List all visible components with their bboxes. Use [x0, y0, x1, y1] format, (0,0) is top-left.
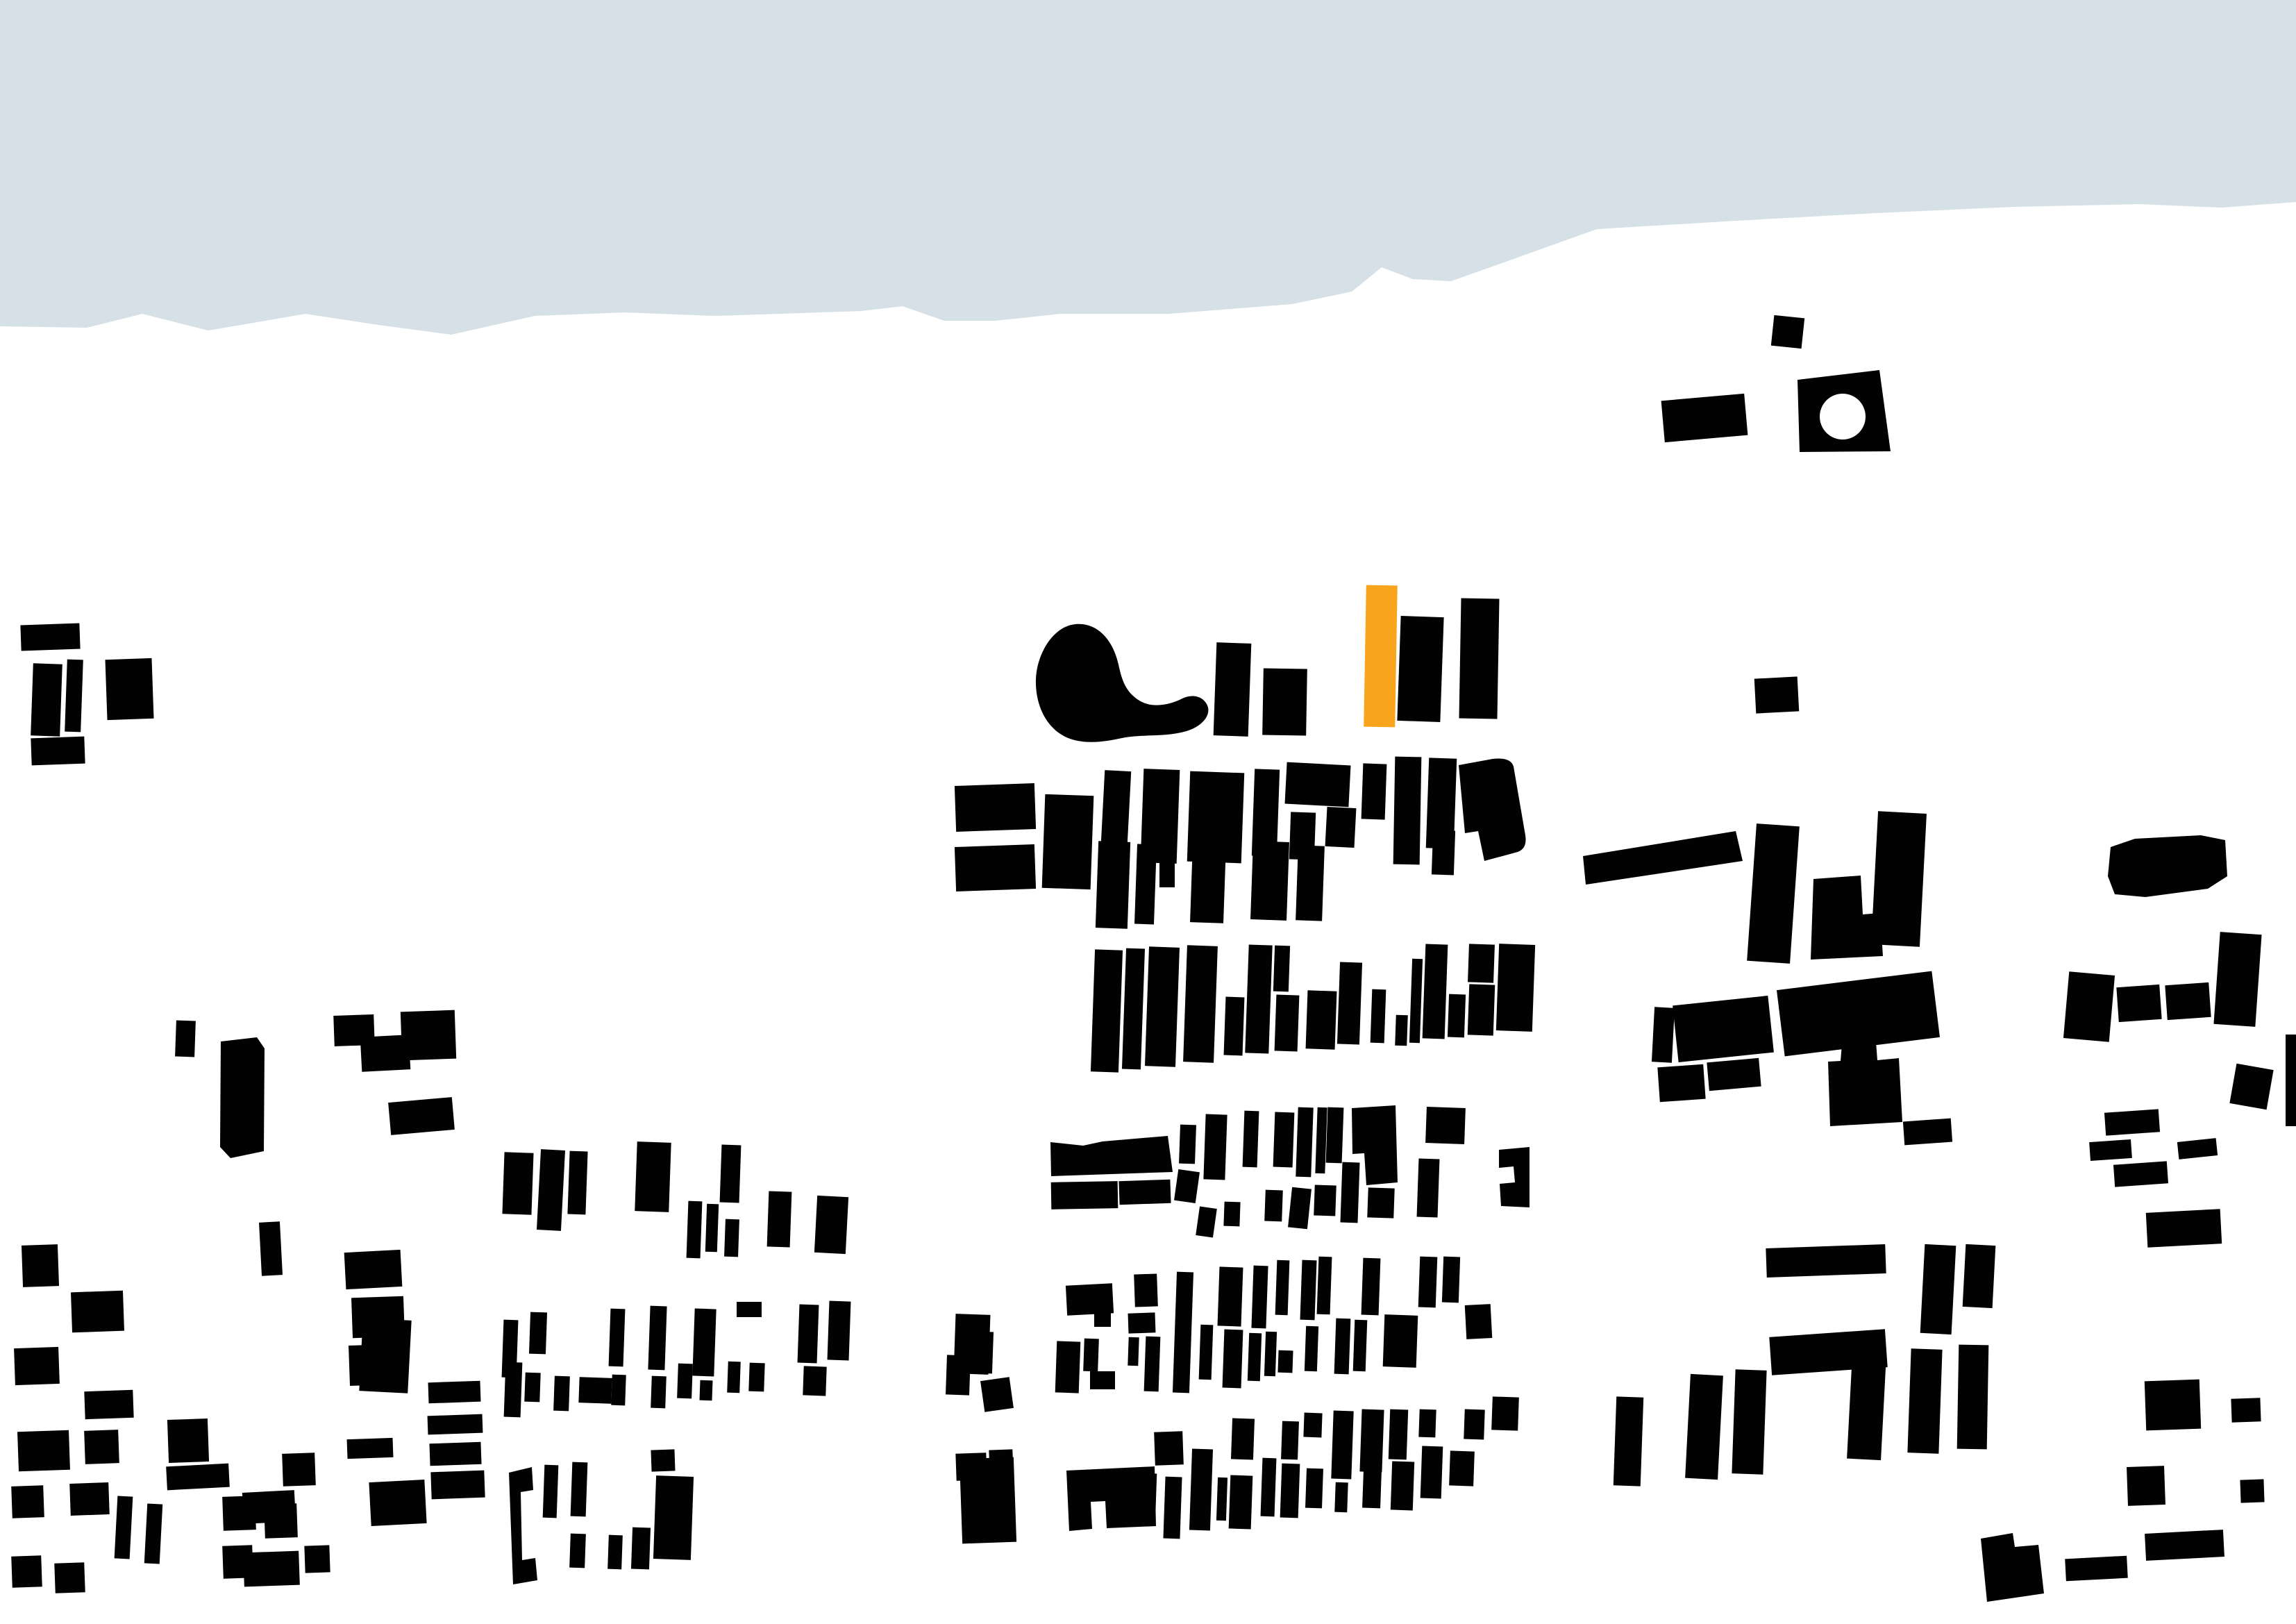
- building-footprint: [1305, 1326, 1318, 1372]
- building-footprint: [1066, 1466, 1156, 1531]
- building-footprint: [1275, 994, 1300, 1051]
- building-footprint: [1173, 1272, 1193, 1393]
- building-group-central-row5: [955, 1396, 1518, 1543]
- building-group-orange-cluster-black: [1036, 598, 1500, 742]
- building-footprint: [1134, 844, 1157, 925]
- building-footprint: [344, 1250, 403, 1289]
- building-footprint: [1367, 1187, 1394, 1218]
- building-footprint: [1340, 1162, 1359, 1223]
- building-footprint: [631, 1527, 651, 1570]
- building-group-central-row2: [1091, 944, 1535, 1073]
- building-footprint: [1652, 1007, 1675, 1062]
- building-footprint: [1314, 1184, 1336, 1216]
- building-footprint: [1134, 1273, 1158, 1307]
- building-footprint: [1145, 946, 1180, 1066]
- building-footprint: [1199, 1325, 1214, 1380]
- building-footprint: [430, 1471, 485, 1500]
- building-footprint: [1362, 1471, 1382, 1509]
- building-footprint: [651, 1449, 675, 1471]
- building-group-central-row1: [955, 757, 1526, 929]
- building-footprint: [222, 1496, 256, 1531]
- building-footprint: [1963, 1244, 1996, 1308]
- water-area: [0, 0, 2296, 335]
- building-footprint: [1273, 1112, 1295, 1168]
- building-footprint: [607, 1535, 623, 1570]
- building-footprint: [611, 1375, 626, 1406]
- building-footprint: [1305, 1468, 1323, 1509]
- building-footprint: [1144, 1337, 1161, 1392]
- building-footprint: [1296, 1107, 1313, 1178]
- building-footprint: [1264, 1190, 1283, 1222]
- building-footprint: [1395, 1015, 1408, 1046]
- courtyard-hole: [1820, 394, 1866, 440]
- building-footprint: [11, 1555, 42, 1587]
- building-footprint: [1361, 763, 1387, 819]
- building-footprint: [282, 1453, 316, 1487]
- building-footprint: [401, 1010, 456, 1061]
- building-footprint: [1122, 948, 1145, 1070]
- building-footprint: [369, 1480, 426, 1526]
- building-footprint: [1262, 668, 1307, 735]
- building-footprint: [1409, 959, 1423, 1043]
- building-footprint: [1303, 1413, 1322, 1438]
- building-footprint: [828, 1300, 851, 1360]
- building-footprint: [767, 1191, 792, 1247]
- highlighted-building: [1364, 585, 1398, 728]
- building-footprint: [144, 1503, 162, 1564]
- building-footprint: [1042, 794, 1094, 889]
- building-footprint: [980, 1377, 1014, 1412]
- building-footprint: [1359, 1409, 1384, 1472]
- building-footprint: [2231, 1398, 2261, 1422]
- building-footprint: [651, 1376, 667, 1409]
- building-footprint: [428, 1414, 483, 1435]
- building-footprint: [1051, 1181, 1118, 1209]
- building-footprint: [84, 1430, 119, 1464]
- building-footprint: [653, 1475, 694, 1560]
- building-footprint: [609, 1309, 626, 1367]
- building-footprint: [955, 844, 1036, 891]
- building-footprint: [543, 1465, 559, 1518]
- building-footprint: [65, 660, 83, 733]
- building-footprint: [11, 1485, 44, 1518]
- building-footprint: [14, 1347, 60, 1385]
- building-footprint: [699, 1380, 712, 1401]
- building-footprint: [175, 1021, 196, 1057]
- building-footprint: [1464, 1409, 1484, 1440]
- building-footprint: [1685, 1374, 1723, 1480]
- building-footprint: [569, 1534, 586, 1568]
- building-footprint: [69, 1482, 110, 1516]
- building-footprint: [1190, 844, 1226, 923]
- building-footprint: [1981, 1533, 2044, 1602]
- building-footprint: [1189, 1449, 1213, 1531]
- building-footprint: [2113, 1161, 2168, 1187]
- building-footprint: [1288, 1187, 1312, 1230]
- building-footprint: [1296, 845, 1325, 921]
- water-body: [0, 0, 2296, 335]
- building-footprint: [798, 1305, 819, 1364]
- building-footprint: [737, 1302, 762, 1317]
- building-footprint: [22, 1244, 59, 1287]
- building-footprint: [2177, 1138, 2218, 1160]
- building-footprint: [1091, 949, 1123, 1072]
- building-footprint: [1243, 1111, 1259, 1168]
- building-footprint: [1754, 676, 1800, 713]
- building-footprint: [955, 783, 1036, 832]
- building-footprint: [1397, 616, 1443, 722]
- building-footprint: [1214, 642, 1252, 737]
- building-footprint: [1903, 1119, 1952, 1146]
- building-footprint: [677, 1364, 693, 1399]
- building-footprint: [502, 1152, 533, 1214]
- building-footprint: [2108, 835, 2227, 897]
- building-footprint: [1334, 1319, 1351, 1375]
- building-footprint: [1389, 1409, 1408, 1460]
- building-footprint: [1315, 1107, 1327, 1173]
- building-footprint: [2063, 971, 2115, 1041]
- city-figure-ground-map: [0, 0, 2296, 1624]
- building-footprint: [1468, 984, 1495, 1035]
- building-footprint: [648, 1306, 667, 1371]
- building-group-harbor-left: [20, 623, 153, 766]
- building-footprint: [1306, 990, 1337, 1049]
- building-footprint: [1096, 841, 1130, 929]
- building-footprint: [1224, 997, 1245, 1056]
- building-footprint: [1707, 1058, 1761, 1091]
- building-group-bottom-right-cluster: [1614, 1244, 2128, 1602]
- building-footprint: [304, 1545, 330, 1573]
- building-footprint: [724, 1219, 739, 1257]
- building-footprint: [509, 1467, 537, 1584]
- building-footprint: [359, 1318, 411, 1393]
- building-footprint: [1417, 1159, 1440, 1218]
- building-footprint: [1828, 1041, 1902, 1126]
- building-footprint: [2089, 1139, 2132, 1161]
- building-footprint: [2145, 1380, 2201, 1431]
- building-footprint: [1459, 758, 1526, 861]
- building-footprint: [1353, 1320, 1368, 1372]
- building-footprint: [1657, 1064, 1705, 1102]
- building-footprint: [1673, 996, 1774, 1062]
- building-footprint: [1179, 1125, 1196, 1164]
- building-footprint: [1281, 1421, 1299, 1460]
- building-group-central-row4: [946, 1257, 1492, 1412]
- building-footprint: [115, 1496, 133, 1559]
- building-footprint: [2213, 932, 2261, 1027]
- building-footprint: [1317, 1257, 1332, 1315]
- building-group-center-left-cluster: [502, 1141, 851, 1584]
- building-footprint: [1331, 1411, 1353, 1480]
- building-footprint: [1920, 1244, 1956, 1334]
- building-footprint: [960, 1457, 1016, 1544]
- building-footprint: [1216, 1477, 1227, 1521]
- building-footprint: [727, 1362, 741, 1393]
- building-footprint: [1300, 1260, 1317, 1321]
- building-footprint: [946, 1355, 971, 1395]
- building-footprint: [1066, 1283, 1114, 1315]
- building-footprint: [1371, 989, 1386, 1044]
- building-footprint: [1223, 1202, 1240, 1227]
- building-footprint: [1250, 841, 1289, 921]
- building-footprint: [1036, 624, 1208, 742]
- building-footprint: [17, 1430, 70, 1472]
- building-footprint: [705, 1204, 719, 1253]
- building-footprint: [1050, 1136, 1173, 1176]
- building-footprint: [1496, 944, 1535, 1032]
- building-group-right-cluster: [1583, 676, 1952, 1145]
- building-footprint: [1229, 1475, 1253, 1529]
- building-footprint: [1425, 1107, 1466, 1144]
- building-footprint: [1337, 962, 1362, 1044]
- building-footprint: [1747, 823, 1800, 964]
- building-footprint: [1432, 830, 1455, 875]
- building-footprint: [1251, 1266, 1268, 1329]
- building-footprint: [553, 1376, 570, 1412]
- building-footprint: [537, 1149, 565, 1231]
- building-footprint: [1128, 1337, 1139, 1366]
- building-footprint: [2286, 1035, 2296, 1126]
- building-footprint: [1203, 1114, 1227, 1180]
- building-footprint: [1154, 1431, 1184, 1465]
- building-footprint: [1661, 394, 1748, 442]
- building-footprint: [1196, 1206, 1217, 1237]
- building-footprint: [31, 663, 62, 736]
- building-footprint: [1383, 1314, 1418, 1368]
- building-footprint: [1907, 1348, 1942, 1453]
- building-footprint: [2127, 1466, 2165, 1506]
- building-footprint: [1159, 847, 1175, 887]
- building-group-bottom-far-right: [2127, 1380, 2265, 1561]
- building-footprint: [692, 1308, 716, 1376]
- building-footprint: [429, 1442, 481, 1466]
- building-footprint: [1449, 1450, 1475, 1486]
- building-footprint: [31, 737, 85, 766]
- building-footprint: [635, 1141, 671, 1212]
- building-footprint: [2145, 1530, 2224, 1561]
- building-footprint: [1583, 831, 1743, 885]
- building-footprint: [1118, 1180, 1171, 1205]
- building-footprint: [1732, 1369, 1766, 1474]
- building-footprint: [84, 1390, 133, 1419]
- building-footprint: [975, 1332, 994, 1374]
- building-footprint: [1275, 1260, 1290, 1316]
- building-footprint: [388, 1097, 455, 1135]
- building-footprint: [571, 1462, 588, 1517]
- building-footprint: [222, 1545, 253, 1578]
- building-footprint: [2240, 1479, 2264, 1502]
- building-footprint: [166, 1464, 230, 1491]
- building-footprint: [1423, 944, 1448, 1039]
- building-footprint: [1766, 1244, 1886, 1278]
- building-footprint: [1393, 757, 1422, 865]
- building-footprint: [687, 1201, 703, 1259]
- building-footprint: [347, 1438, 394, 1459]
- building-footprint: [504, 1362, 523, 1418]
- building-footprint: [2146, 1209, 2222, 1248]
- building-footprint: [1468, 944, 1495, 982]
- building-footprint: [578, 1377, 612, 1404]
- building-footprint: [1811, 876, 1883, 960]
- building-footprint: [1094, 1313, 1111, 1327]
- building-footprint: [1614, 1396, 1643, 1486]
- highlighted-building-layer: [1364, 585, 1398, 728]
- building-group-far-right-cluster: [2063, 835, 2296, 1248]
- building-footprint: [1090, 1371, 1115, 1389]
- building-footprint: [1421, 1446, 1443, 1498]
- building-footprint: [1847, 1355, 1886, 1460]
- building-footprint: [1277, 1350, 1293, 1373]
- building-footprint: [1448, 994, 1466, 1038]
- building-footprint: [524, 1373, 540, 1403]
- building-group-left-cluster: [11, 1010, 485, 1593]
- building-footprint: [1459, 598, 1499, 719]
- building-footprint: [1325, 807, 1357, 848]
- building-footprint: [1499, 1147, 1530, 1207]
- building-footprint: [1248, 1333, 1262, 1382]
- building-footprint: [1771, 315, 1804, 349]
- building-footprint: [2165, 982, 2211, 1020]
- building-footprint: [106, 658, 154, 720]
- building-footprint: [1128, 1312, 1156, 1333]
- building-footprint: [1261, 1458, 1277, 1517]
- building-footprint: [1491, 1396, 1519, 1430]
- building-footprint: [428, 1381, 480, 1404]
- buildings-layer: [11, 315, 2296, 1602]
- building-footprint: [1418, 1409, 1436, 1438]
- building-footprint: [1231, 1418, 1255, 1459]
- building-footprint: [1223, 1330, 1243, 1389]
- building-footprint: [1280, 1464, 1300, 1518]
- building-footprint: [220, 1037, 265, 1158]
- building-footprint: [1245, 944, 1272, 1053]
- figure-ground-map-page: [0, 0, 2296, 1624]
- building-footprint: [20, 623, 80, 651]
- building-footprint: [1218, 1266, 1243, 1326]
- building-footprint: [814, 1196, 848, 1254]
- building-footprint: [1174, 1169, 1200, 1203]
- building-footprint: [803, 1366, 826, 1396]
- building-footprint: [167, 1418, 209, 1463]
- building-footprint: [1334, 1482, 1348, 1513]
- building-footprint: [1284, 762, 1350, 807]
- building-footprint: [259, 1221, 283, 1275]
- building-footprint: [54, 1562, 85, 1593]
- building-footprint: [2116, 985, 2161, 1022]
- building-footprint: [1361, 1258, 1381, 1316]
- building-footprint: [567, 1151, 587, 1215]
- building-footprint: [1465, 1304, 1493, 1339]
- building-footprint: [2104, 1109, 2160, 1135]
- building-footprint: [748, 1363, 764, 1392]
- building-footprint: [720, 1145, 741, 1203]
- building-footprint: [1163, 1477, 1182, 1539]
- building-footprint: [1391, 1461, 1414, 1510]
- building-footprint: [1183, 945, 1218, 1062]
- building-footprint: [1957, 1345, 1989, 1450]
- building-footprint: [1326, 1107, 1344, 1164]
- building-group-central-row3: [1050, 1105, 1530, 1238]
- building-footprint: [1273, 946, 1290, 992]
- building-footprint: [1264, 1332, 1277, 1377]
- building-footprint: [529, 1312, 547, 1355]
- building-footprint: [1055, 1341, 1081, 1393]
- building-footprint: [1418, 1257, 1438, 1308]
- building-footprint: [1083, 1339, 1099, 1372]
- building-footprint: [2229, 1064, 2273, 1110]
- building-footprint: [2065, 1556, 2128, 1582]
- building-footprint: [264, 1503, 298, 1539]
- building-footprint: [71, 1291, 124, 1333]
- building-footprint: [1442, 1257, 1460, 1303]
